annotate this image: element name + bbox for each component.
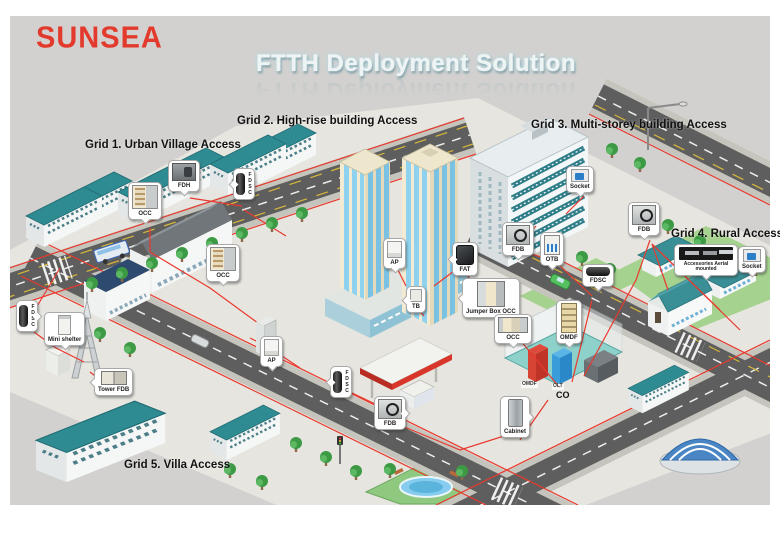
- callout-label: FDB: [512, 247, 524, 253]
- grid2-label: Grid 2. High-rise building Access: [237, 115, 417, 127]
- ap-box-icon: [387, 241, 402, 258]
- callout-fdsc-left: FDSC: [16, 300, 38, 332]
- fdsc-closure-icon: [586, 267, 610, 276]
- fdsc-closure-icon: [333, 371, 342, 393]
- callout-omdf: OMDF: [556, 300, 582, 344]
- callout-jumper-box-occ: Jumper Box OCC: [462, 278, 520, 318]
- callout-fdsc-grid1: FDSC: [233, 168, 255, 200]
- callout-occ-crossroad: OCC: [494, 314, 532, 344]
- callout-ap-villa: AP: [260, 336, 283, 367]
- fdb-cabinet-icon: [632, 205, 656, 225]
- callout-label: AP: [390, 260, 398, 266]
- grid3-label: Grid 3. Multi-storey building Access: [531, 119, 727, 131]
- ap-box-icon: [264, 339, 279, 356]
- page-title-reflection: FTTH Deployment Solution: [256, 76, 576, 104]
- callout-fdh-grid1: FDH: [168, 160, 200, 192]
- omdf-rack-icon: [561, 303, 577, 333]
- callout-tb: TB: [406, 286, 426, 313]
- fdsc-closure-icon: [236, 173, 245, 195]
- callout-tower-fdb: Tower FDB: [94, 368, 133, 396]
- callout-label: OMDF: [560, 335, 578, 341]
- callout-label: FAT: [460, 267, 471, 273]
- callout-mini-shelter: Mini shelter: [44, 312, 85, 346]
- callout-label: FDB: [638, 227, 650, 233]
- callout-fdsc-villa: FDSC: [330, 366, 352, 398]
- callout-label: OCC: [216, 273, 229, 279]
- callout-label: FDH: [178, 183, 190, 189]
- occ-cabinet-icon: [132, 185, 158, 209]
- callout-label: Socket: [570, 184, 590, 190]
- callout-label: OCC: [506, 335, 519, 341]
- cabinet-icon: [508, 399, 523, 427]
- socket-icon: [743, 249, 761, 262]
- callout-label: FDSC: [247, 172, 252, 196]
- sunsea-logo: SUNSEA: [36, 21, 163, 56]
- callout-fdb-villa: FDB: [374, 396, 406, 430]
- aerial-hardware-icon: [679, 247, 733, 260]
- callout-label: FDSC: [344, 370, 349, 394]
- page-title: FTTH Deployment Solution: [256, 50, 576, 78]
- socket-icon: [571, 169, 589, 182]
- callout-label: Tower FDB: [98, 387, 129, 393]
- grid4-label: Grid 4. Rural Access: [671, 228, 780, 240]
- callout-label: Accessories Aerial mounted: [678, 262, 734, 273]
- callout-occ-street: OCC: [206, 244, 240, 282]
- callout-label: Mini shelter: [48, 337, 81, 343]
- callout-socket-rural: Socket: [738, 246, 766, 273]
- occ-cabinet-icon: [210, 247, 236, 271]
- callout-fdsc-road: FDSC: [582, 264, 614, 287]
- callout-label: TB: [412, 304, 420, 310]
- fdb-cabinet-icon: [506, 225, 530, 245]
- callout-cabinet: Cabinet: [500, 396, 530, 438]
- fdb-cabinet-icon: [378, 399, 402, 419]
- callout-ap-highrise: AP: [383, 238, 406, 269]
- co-label: CO: [556, 390, 570, 400]
- callout-label: AP: [267, 358, 275, 364]
- grid5-label: Grid 5. Villa Access: [124, 459, 230, 471]
- fdh-cabinet-icon: [172, 163, 196, 181]
- olt-cabinet: [552, 348, 572, 384]
- callout-label: FDSC: [30, 304, 35, 328]
- callout-label: OTB: [546, 257, 559, 263]
- tb-box-icon: [410, 289, 422, 302]
- callout-accessories-aerial: Accessories Aerial mounted: [674, 244, 738, 276]
- grid1-label: Grid 1. Urban Village Access: [85, 139, 241, 151]
- olt-tag: OLT: [552, 384, 564, 390]
- fdsc-closure-icon: [19, 305, 28, 327]
- callout-label: FDSC: [590, 278, 606, 284]
- callout-label: Socket: [742, 264, 762, 270]
- callout-label: OCC: [138, 211, 151, 217]
- callout-label: FDB: [384, 421, 396, 427]
- otb-terminal-icon: [544, 235, 560, 255]
- ftth-solution-infographic: SUNSEA FTTH Deployment Solution FTTH Dep…: [0, 0, 780, 534]
- omdf-cabinet: [528, 344, 548, 382]
- callout-fat: FAT: [452, 242, 478, 276]
- callout-fdb-rural: FDB: [628, 202, 660, 236]
- fat-terminal-icon: [456, 245, 474, 265]
- callout-otb: OTB: [540, 232, 564, 266]
- mini-shelter-icon: [58, 315, 71, 335]
- tower-fdb-icon: [101, 371, 127, 385]
- occ-cabinet-icon: [498, 317, 528, 333]
- jumper-box-icon: [477, 281, 505, 307]
- callout-occ-grid1: OCC: [128, 182, 162, 220]
- callout-socket-multistorey: Socket: [566, 166, 594, 193]
- callout-label: Cabinet: [504, 429, 526, 435]
- callout-fdb-road: FDB: [502, 222, 534, 256]
- omdf-tag: OMDF: [521, 382, 538, 388]
